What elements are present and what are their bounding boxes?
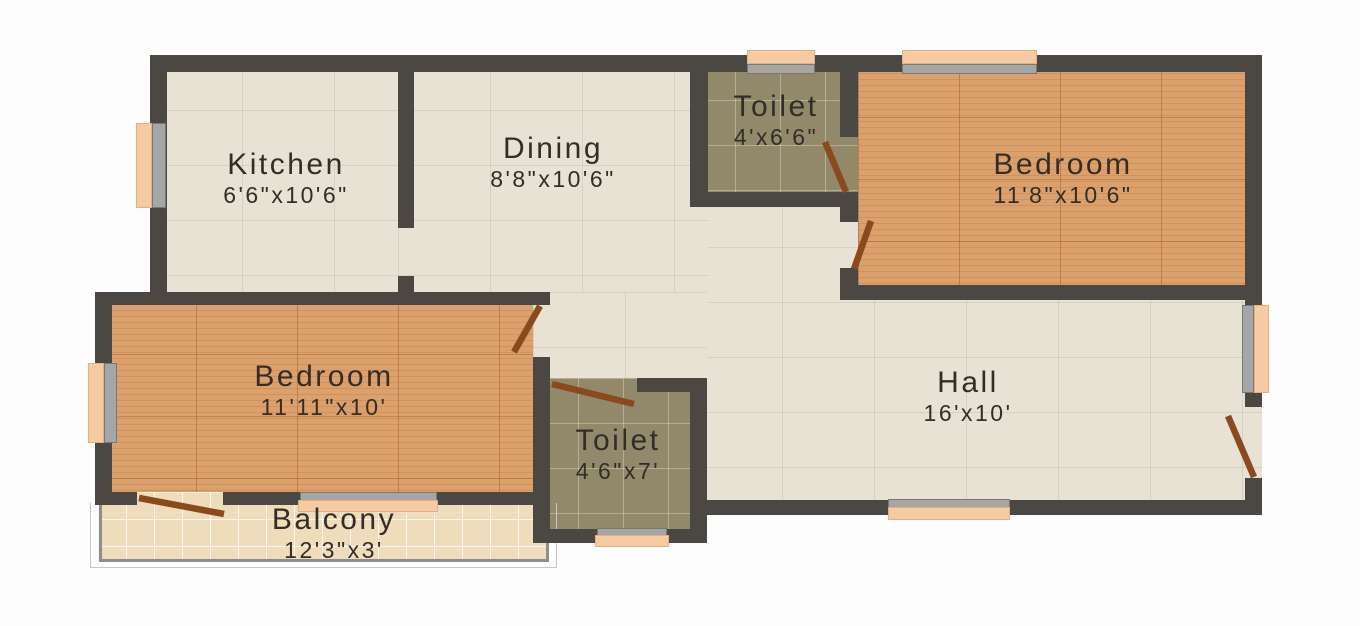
room-label-dining: Dining 8'8"x10'6" — [490, 132, 616, 193]
room-dimensions: 12'3"x3' — [272, 537, 396, 564]
room-name: Bedroom — [254, 360, 393, 394]
wall — [398, 72, 414, 228]
wall — [95, 492, 137, 505]
hall-side-window-frame — [1242, 305, 1254, 393]
room-dimensions: 11'8"x10'6" — [993, 182, 1132, 209]
room-dimensions: 16'x10' — [924, 400, 1013, 427]
wall — [840, 192, 858, 222]
toilet-top-window — [747, 50, 815, 64]
room-dimensions: 8'8"x10'6" — [490, 166, 616, 193]
room-label-balcony: Balcony 12'3"x3' — [272, 503, 396, 564]
bedroom-right-window-frame — [902, 64, 1037, 74]
bedroom-left-window-frame — [104, 363, 117, 443]
floor-plan: Kitchen 6'6"x10'6" Dining 8'8"x10'6" Toi… — [0, 0, 1360, 626]
room-label-toilet-top: Toilet 4'x6'6" — [733, 90, 818, 151]
hall-bottom-window — [888, 507, 1010, 520]
bedroom-left-window — [88, 363, 104, 443]
room-name: Dining — [490, 132, 616, 166]
hall-side-window — [1254, 305, 1269, 393]
floor-plan-geometry — [0, 0, 1360, 626]
room-dimensions: 4'6"x7' — [575, 458, 660, 485]
wall — [840, 72, 858, 137]
wall — [690, 55, 708, 207]
room-label-kitchen: Kitchen 6'6"x10'6" — [223, 148, 349, 209]
room-dimensions: 11'11"x10' — [254, 394, 393, 421]
room-name: Hall — [924, 366, 1013, 400]
wall — [690, 192, 858, 207]
room-label-bedroom-right: Bedroom 11'8"x10'6" — [993, 148, 1132, 209]
room-name: Kitchen — [223, 148, 349, 182]
room-label-bedroom-left: Bedroom 11'11"x10' — [254, 360, 393, 421]
kitchen-window — [136, 123, 152, 208]
wall — [533, 357, 550, 543]
toilet-top-window-frame — [747, 64, 815, 74]
bedroom-right-window — [902, 50, 1037, 64]
room-name: Toilet — [733, 90, 818, 124]
room-name: Balcony — [272, 503, 396, 537]
room-name: Bedroom — [993, 148, 1132, 182]
kitchen-window-frame — [152, 123, 166, 208]
room-label-toilet-bottom: Toilet 4'6"x7' — [575, 424, 660, 485]
wall — [840, 285, 1262, 300]
wall — [690, 378, 707, 543]
toilet-bottom-window — [595, 535, 669, 547]
room-dimensions: 4'x6'6" — [733, 124, 818, 151]
floor-corridor — [533, 292, 707, 392]
room-label-hall: Hall 16'x10' — [924, 366, 1013, 427]
room-dimensions: 6'6"x10'6" — [223, 182, 349, 209]
room-name: Toilet — [575, 424, 660, 458]
wall — [95, 292, 550, 305]
